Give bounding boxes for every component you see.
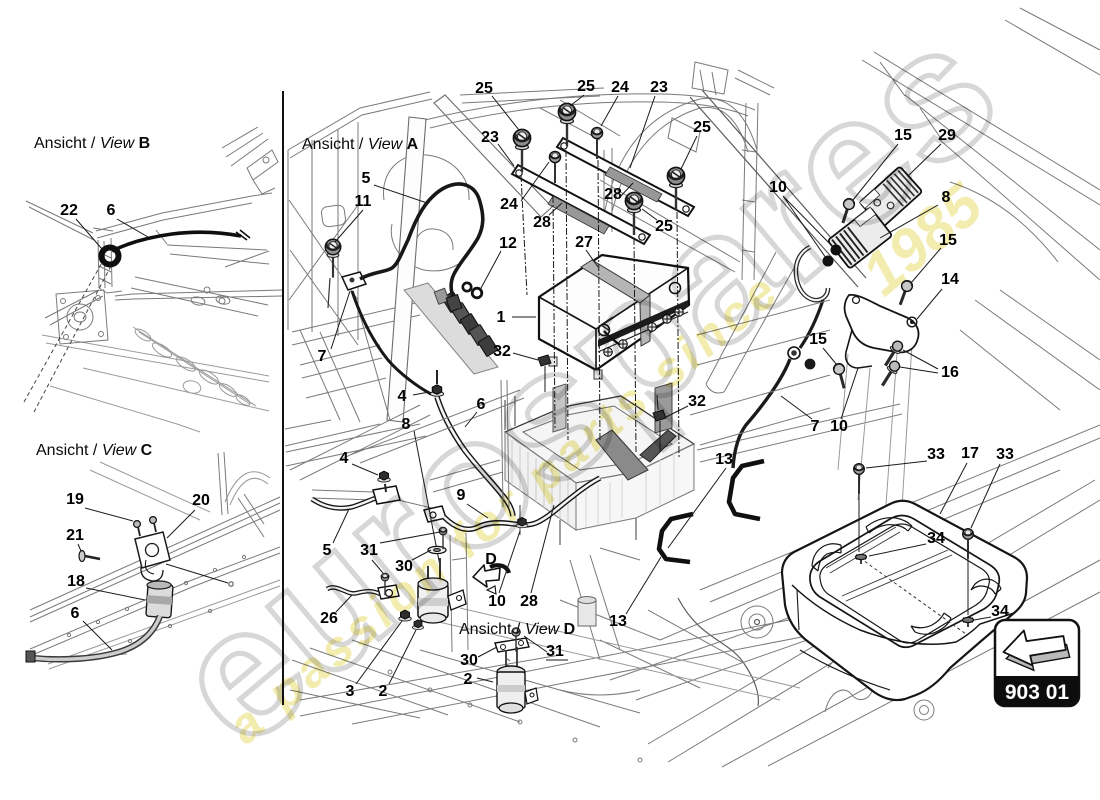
svg-text:19: 19 (66, 491, 84, 508)
svg-text:33: 33 (996, 446, 1014, 463)
svg-text:Ansicht / View D: Ansicht / View D (459, 621, 575, 638)
svg-text:Ansicht / View B: Ansicht / View B (34, 135, 150, 152)
svg-text:21: 21 (66, 527, 84, 544)
svg-text:6: 6 (71, 605, 80, 622)
svg-text:6: 6 (107, 202, 116, 219)
svg-text:30: 30 (460, 652, 478, 669)
svg-text:25: 25 (577, 78, 595, 95)
svg-text:34: 34 (927, 530, 945, 547)
svg-text:34: 34 (991, 603, 1009, 620)
svg-text:2: 2 (464, 671, 473, 688)
svg-text:16: 16 (941, 364, 959, 381)
svg-text:31: 31 (546, 643, 564, 660)
svg-text:25: 25 (475, 80, 493, 97)
svg-text:13: 13 (715, 451, 733, 468)
svg-text:24: 24 (611, 79, 629, 96)
svg-text:33: 33 (927, 446, 945, 463)
svg-text:Ansicht / View A: Ansicht / View A (302, 136, 419, 153)
svg-text:18: 18 (67, 573, 85, 590)
svg-text:24: 24 (500, 196, 518, 213)
svg-text:7: 7 (811, 418, 820, 435)
svg-text:15: 15 (809, 331, 827, 348)
svg-text:13: 13 (609, 613, 627, 630)
svg-text:11: 11 (355, 193, 372, 210)
svg-text:7: 7 (318, 348, 327, 365)
svg-text:14: 14 (941, 271, 959, 288)
svg-text:17: 17 (961, 445, 979, 462)
svg-text:23: 23 (481, 129, 499, 146)
svg-text:25: 25 (693, 119, 711, 136)
svg-text:28: 28 (520, 593, 538, 610)
svg-text:12: 12 (499, 235, 517, 252)
svg-text:23: 23 (650, 79, 668, 96)
svg-text:28: 28 (604, 186, 622, 203)
svg-text:20: 20 (192, 492, 210, 509)
svg-text:5: 5 (362, 170, 371, 187)
svg-text:Ansicht / View C: Ansicht / View C (36, 442, 153, 459)
svg-text:903 01: 903 01 (1005, 681, 1070, 704)
svg-text:10: 10 (830, 418, 848, 435)
svg-text:28: 28 (533, 214, 551, 231)
svg-text:22: 22 (60, 202, 78, 219)
